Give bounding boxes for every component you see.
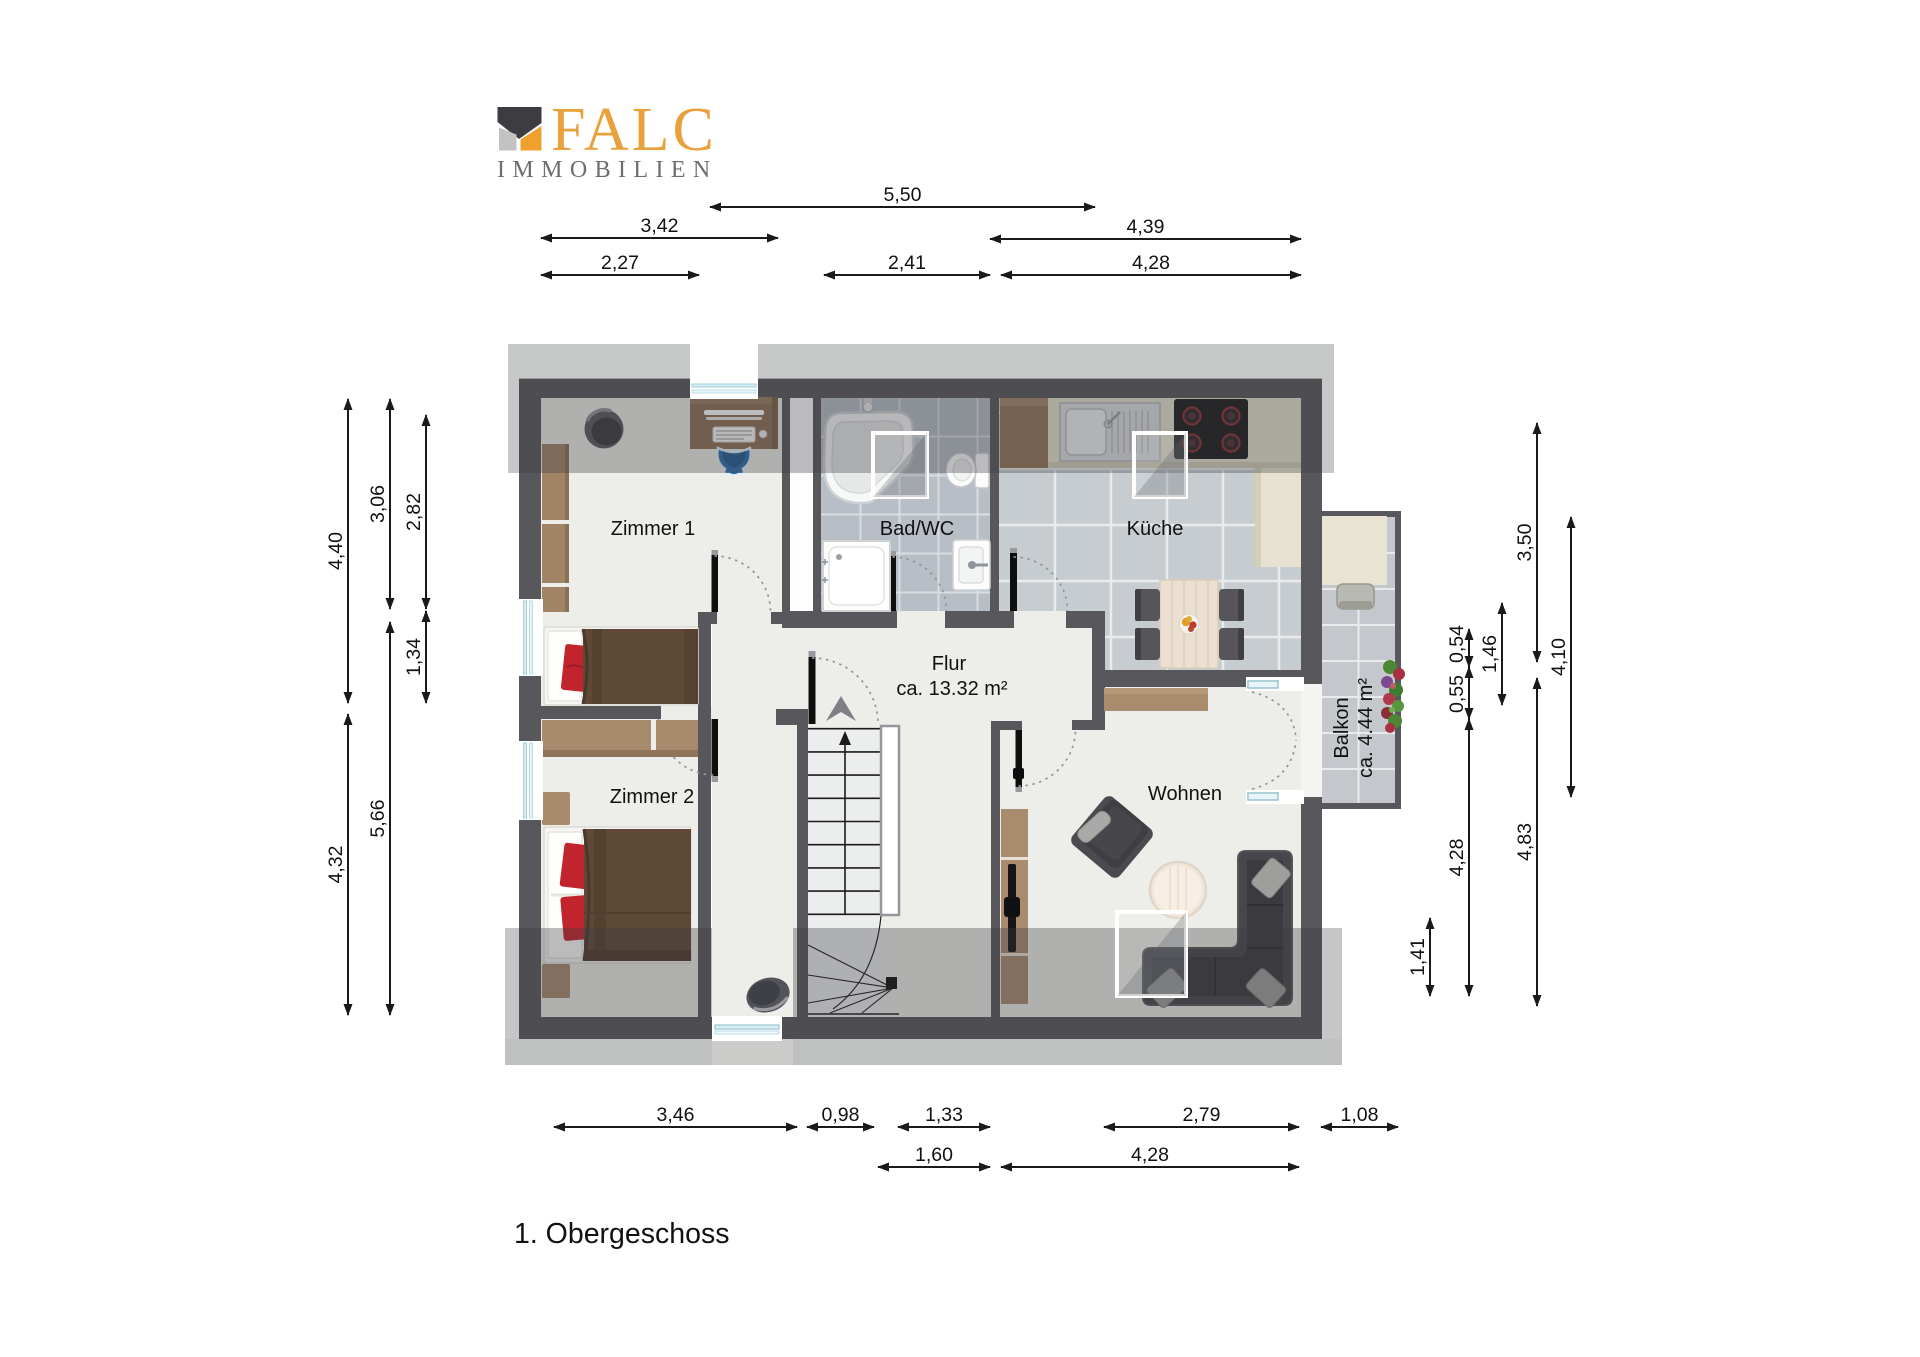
svg-text:2,27: 2,27: [601, 252, 639, 274]
svg-text:4,32: 4,32: [325, 846, 347, 884]
svg-text:ca. 13.32 m²: ca. 13.32 m²: [896, 678, 1008, 700]
svg-text:4,28: 4,28: [1446, 839, 1468, 877]
svg-text:Zimmer 1: Zimmer 1: [611, 518, 695, 540]
svg-text:Bad/WC: Bad/WC: [880, 518, 954, 540]
svg-text:1,46: 1,46: [1479, 635, 1501, 673]
svg-text:4,40: 4,40: [325, 532, 347, 570]
svg-text:2,79: 2,79: [1183, 1104, 1221, 1126]
svg-text:4,28: 4,28: [1131, 1144, 1169, 1166]
svg-text:4,83: 4,83: [1514, 823, 1536, 861]
svg-text:5,50: 5,50: [884, 184, 922, 206]
svg-text:3,06: 3,06: [367, 485, 389, 523]
svg-text:FALC: FALC: [551, 96, 717, 164]
svg-text:3,42: 3,42: [641, 215, 679, 237]
svg-text:IMMOBILIEN: IMMOBILIEN: [497, 157, 718, 183]
svg-text:0,54: 0,54: [1446, 625, 1468, 663]
svg-text:Wohnen: Wohnen: [1148, 783, 1222, 805]
svg-text:1,60: 1,60: [915, 1144, 953, 1166]
svg-text:2,41: 2,41: [888, 252, 926, 274]
svg-text:3,50: 3,50: [1514, 523, 1536, 561]
svg-text:0,98: 0,98: [822, 1104, 860, 1126]
svg-text:1,08: 1,08: [1341, 1104, 1379, 1126]
svg-text:1,41: 1,41: [1407, 938, 1429, 976]
svg-text:4,28: 4,28: [1132, 252, 1170, 274]
svg-text:Küche: Küche: [1127, 518, 1184, 540]
svg-text:2,82: 2,82: [403, 493, 425, 531]
svg-text:ca. 4.44 m²: ca. 4.44 m²: [1355, 678, 1377, 778]
svg-text:4,10: 4,10: [1548, 638, 1570, 676]
svg-text:5,66: 5,66: [367, 800, 389, 838]
svg-text:0,55: 0,55: [1446, 675, 1468, 713]
svg-text:1,34: 1,34: [403, 638, 425, 676]
svg-text:1,33: 1,33: [925, 1104, 963, 1126]
svg-text:Flur: Flur: [932, 653, 967, 675]
svg-text:4,39: 4,39: [1127, 216, 1165, 238]
svg-text:Balkon: Balkon: [1331, 697, 1353, 758]
svg-text:Zimmer 2: Zimmer 2: [610, 786, 694, 808]
svg-text:1. Obergeschoss: 1. Obergeschoss: [514, 1218, 729, 1250]
svg-text:3,46: 3,46: [657, 1104, 695, 1126]
